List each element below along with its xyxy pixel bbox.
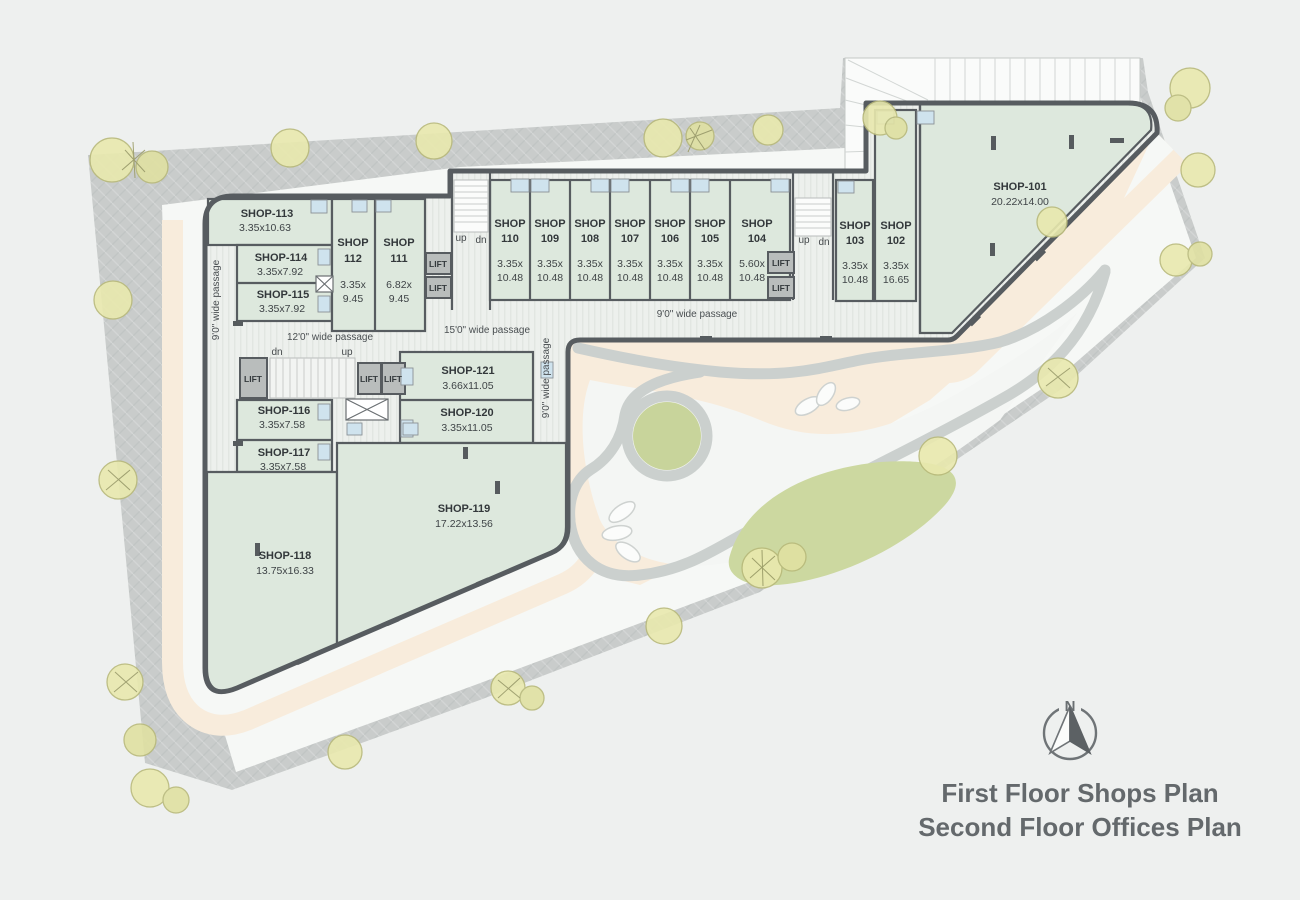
shop-117-label: SHOP-117 (258, 447, 311, 459)
shop-111-num: 111 (390, 253, 407, 265)
lift-label: LIFT (429, 283, 448, 293)
shop-103-label: SHOP (839, 220, 870, 232)
shop-112-size1: 3.35x (340, 279, 366, 291)
shop-105-num: 105 (701, 233, 719, 245)
shop-120-size: 3.35x11.05 (441, 422, 492, 434)
shop-102-num: 102 (887, 235, 905, 247)
stair-north-2 (795, 198, 831, 236)
floor-plan-drawing: SHOP-101 20.22x14.00 SHOP 102 3.35x 16.6… (0, 0, 1300, 900)
shop-119-label: SHOP-119 (438, 503, 491, 515)
garden-circle-lawn (633, 402, 701, 470)
lift-label: LIFT (429, 259, 448, 269)
shop-120-label: SHOP-120 (440, 407, 493, 419)
shop-116-label: SHOP-116 (258, 405, 311, 417)
shop-112-label: SHOP (337, 237, 368, 249)
tree (271, 129, 309, 167)
plan-title-line1: First Floor Shops Plan (941, 778, 1218, 808)
shop-107-size2: 10.48 (617, 272, 643, 284)
tree (646, 608, 682, 644)
shop-102-size1: 3.35x (883, 260, 909, 272)
north-compass: N (1044, 697, 1096, 759)
shop-114-size: 3.35x7.92 (257, 266, 303, 278)
tree (1037, 207, 1067, 237)
shop-105-size1: 3.35x (697, 258, 723, 270)
shop-103-size2: 10.48 (842, 274, 868, 286)
shop-117-size: 3.35x7.58 (260, 461, 306, 473)
stair-dn-label: dn (818, 237, 829, 248)
shop-103-num: 103 (846, 235, 864, 247)
shop-112-111-unit (332, 199, 425, 331)
shop-105-size2: 10.48 (697, 272, 723, 284)
shop-106-size2: 10.48 (657, 272, 683, 284)
passage-label-top: 9'0" wide passage (657, 309, 738, 320)
shop-115-label: SHOP-115 (257, 289, 310, 301)
shop-109-label: SHOP (534, 218, 565, 230)
shop-111-size1: 6.82x (386, 279, 412, 291)
tree (1165, 68, 1210, 121)
tree (919, 437, 957, 475)
shop-104-size2: 10.48 (739, 272, 765, 284)
shop-107-num: 107 (621, 233, 639, 245)
lift-label: LIFT (384, 374, 403, 384)
tree (94, 281, 132, 319)
shop-110-size1: 3.35x (497, 258, 523, 270)
stair-up-label: up (798, 235, 810, 246)
shop-104-label: SHOP (741, 218, 772, 230)
stair-north-1 (454, 180, 488, 232)
shop-115-size: 3.35x7.92 (259, 303, 305, 315)
shop-102-label: SHOP (880, 220, 911, 232)
tree (328, 735, 362, 769)
plan-title-line2: Second Floor Offices Plan (918, 812, 1242, 842)
passage-label-center: 9'0" wide passage (541, 337, 552, 418)
stair-central (270, 358, 355, 398)
passage-label-12: 12'0" wide passage (287, 332, 374, 343)
shop-113-size: 3.35x10.63 (239, 222, 291, 234)
tree (131, 769, 189, 813)
shop-101-label: SHOP-101 (993, 181, 1046, 193)
plan-title: First Floor Shops Plan Second Floor Offi… (918, 778, 1242, 842)
shop-108-label: SHOP (574, 218, 605, 230)
shop-107-label: SHOP (614, 218, 645, 230)
shop-109-size2: 10.48 (537, 272, 563, 284)
shop-121-size: 3.66x11.05 (442, 380, 493, 392)
shop-119-size: 17.22x13.56 (435, 518, 493, 530)
shop-105-label: SHOP (694, 218, 725, 230)
shop-111-size2: 9.45 (389, 293, 410, 305)
shop-110-size2: 10.48 (497, 272, 523, 284)
stair-dn-label: dn (271, 347, 282, 358)
tree (416, 123, 452, 159)
tree (1038, 358, 1078, 398)
shop-101-size: 20.22x14.00 (991, 196, 1049, 208)
shop-118-size: 13.75x16.33 (256, 565, 314, 577)
shop-108-size2: 10.48 (577, 272, 603, 284)
stair-up-label: up (341, 347, 353, 358)
shop-107-size1: 3.35x (617, 258, 643, 270)
stair-dn-label: dn (475, 235, 486, 246)
compass-n-label: N (1065, 698, 1076, 715)
shop-103-size1: 3.35x (842, 260, 868, 272)
shop-110-num: 110 (501, 233, 519, 245)
shop-108-size1: 3.35x (577, 258, 603, 270)
tree (1160, 242, 1212, 276)
shop-112-num: 112 (344, 253, 362, 265)
shop-111-label: SHOP (383, 237, 414, 249)
shop-116-size: 3.35x7.58 (259, 419, 305, 431)
shop-114-label: SHOP-114 (255, 252, 308, 264)
passage-label-15: 15'0" wide passage (444, 325, 531, 336)
shop-106-label: SHOP (654, 218, 685, 230)
shop-106-size1: 3.35x (657, 258, 683, 270)
shop-121-label: SHOP-121 (441, 365, 494, 377)
shop-102-size2: 16.65 (883, 274, 909, 286)
shop-104-size1: 5.60x (739, 258, 765, 270)
tree (99, 461, 137, 499)
tree (1181, 153, 1215, 187)
shop-106-num: 106 (661, 233, 679, 245)
lift-label: LIFT (772, 283, 791, 293)
shop-104-num: 104 (748, 233, 767, 245)
shop-108-num: 108 (581, 233, 599, 245)
lift-label: LIFT (772, 258, 791, 268)
floor-plan-page: SHOP-101 20.22x14.00 SHOP 102 3.35x 16.6… (0, 0, 1300, 900)
lift-label: LIFT (244, 374, 263, 384)
shop-118-label: SHOP-118 (259, 550, 312, 562)
stair-up-label: up (455, 233, 467, 244)
shop-109-size1: 3.35x (537, 258, 563, 270)
shop-113-label: SHOP-113 (241, 208, 294, 220)
shop-112-size2: 9.45 (343, 293, 364, 305)
tree (753, 115, 783, 145)
shop-109-num: 109 (541, 233, 559, 245)
shop-110-label: SHOP (494, 218, 525, 230)
passage-label-left: 9'0" wide passage (211, 259, 222, 340)
lift-label: LIFT (360, 374, 379, 384)
